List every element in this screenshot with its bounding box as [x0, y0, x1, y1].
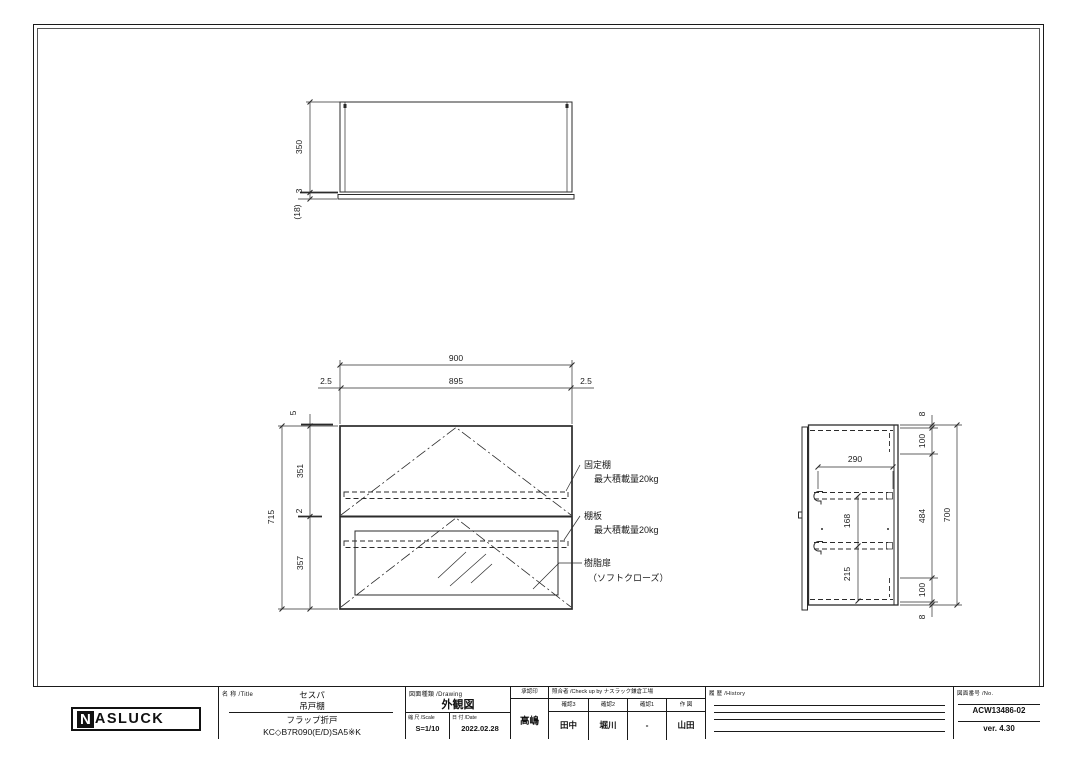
check-label: 照合者 /Check up by ナスラック鎌倉工場	[549, 687, 705, 699]
drafter: 山田	[666, 712, 705, 740]
date-value: 2022.02.28	[450, 724, 510, 733]
history-row-line	[714, 719, 945, 720]
glass-hatch	[438, 552, 492, 586]
side-fixed-shelf	[814, 492, 893, 505]
logo-n-mark: N	[77, 711, 94, 728]
check-column-headers: 確認3 確認2 確認1 作 図	[549, 699, 705, 712]
history-row-line	[714, 705, 945, 706]
history-cell: 履 歴 /History	[705, 687, 953, 739]
callout-fixed-shelf: 固定棚	[584, 459, 611, 470]
check-col-1: 確認1	[627, 699, 666, 712]
dim-side-shelf-gap: 168	[842, 514, 852, 528]
history-row-line	[714, 731, 945, 732]
check-values: 田中 堀川 - 山田	[549, 712, 705, 740]
drawing-canvas: 350 3 (18) 900 2.5 895 2.5	[0, 0, 1080, 764]
pin-hole-right	[887, 528, 889, 530]
check-col-3: 確認3	[549, 699, 588, 712]
drawing-number: ACW13486-02	[954, 706, 1044, 715]
date-label: 日 付 /Date	[452, 714, 477, 721]
pin-hole-left	[821, 528, 823, 530]
title-cell: 名 称 /Title セスパ 吊戸棚 フラップ折戸 KC◇B7R090(E/D)…	[218, 687, 405, 739]
fixed-shelf-hidden-line	[344, 492, 568, 499]
dim-top-door-thickness: (18)	[292, 204, 302, 219]
check-cell: 照合者 /Check up by ナスラック鎌倉工場 確認3 確認2 確認1 作…	[548, 687, 705, 739]
hinge-mark-right	[566, 104, 569, 108]
drawing-type: 外観図	[406, 696, 510, 712]
dim-front-inner-width: 895	[449, 376, 463, 386]
dim-side-bottom-space: 100	[917, 583, 927, 597]
dim-top-depth: 350	[294, 140, 304, 154]
title-divider	[229, 712, 393, 713]
dim-side-top-panel: 8	[917, 411, 927, 416]
check-col-draw: 作 図	[666, 699, 705, 712]
flap-open-direction-upper	[341, 428, 571, 516]
drawing-type-cell: 図面種類 /Drawing 外観図 縮 尺 /Scale S=1/10 日 付 …	[405, 687, 510, 739]
side-shelf	[814, 542, 893, 555]
dim-top-gap: 3	[294, 188, 304, 193]
dim-side-bottom-panel: 8	[917, 614, 927, 619]
checker-1: -	[627, 712, 666, 740]
product-subtype: フラップ折戸	[219, 714, 405, 726]
drawing-no-label: 図面番号 /No.	[957, 689, 993, 697]
side-door-handle	[799, 512, 803, 518]
drawing-version: ver. 4.30	[954, 724, 1044, 733]
side-door-panel	[802, 427, 808, 610]
callout-fixed-shelf-load: 最大積載量20kg	[594, 473, 659, 484]
history-row-line	[714, 712, 945, 713]
scale-label: 縮 尺 /Scale	[408, 714, 435, 721]
checker-2: 堀川	[588, 712, 627, 740]
dim-front-width: 900	[449, 353, 463, 363]
dim-front-lower: 357	[295, 556, 305, 570]
callout-shelf-load: 最大積載量20kg	[594, 524, 659, 535]
dim-side-bottom-gap: 215	[842, 567, 852, 581]
history-label: 履 歴 /History	[709, 689, 745, 697]
approval-cell: 承認印 高嶋	[510, 687, 548, 739]
number-divider	[958, 704, 1040, 705]
shelf-hidden-line	[344, 541, 568, 548]
drawing-number-cell: 図面番号 /No. ACW13486-02 ver. 4.30	[953, 687, 1044, 739]
dim-front-gap-left: 2.5	[320, 376, 332, 386]
approval-label: 承認印	[511, 687, 548, 699]
callout-door: 樹脂扉	[584, 557, 611, 568]
product-series: セスパ	[219, 690, 405, 701]
side-view: 290 168 215 8 100 484 100 8 700	[799, 411, 963, 619]
dim-side-top-space: 100	[917, 434, 927, 448]
title-block: N ASLUCK 名 称 /Title セスパ 吊戸棚 フラップ折戸 KC◇B7…	[33, 686, 1044, 738]
top-view: 350 3 (18)	[292, 100, 574, 220]
dim-side-height: 700	[942, 508, 952, 522]
callouts: 固定棚 最大積載量20kg 棚板 最大積載量20kg 樹脂扉 （ソフトクローズ）	[533, 459, 669, 589]
product-type: 吊戸棚	[219, 701, 405, 712]
nasluck-logo: N ASLUCK	[71, 707, 201, 731]
scale-value: S=1/10	[406, 724, 449, 733]
hinge-mark-left	[344, 104, 347, 108]
dim-front-gap-right: 2.5	[580, 376, 592, 386]
dim-front-top-panel: 5	[288, 410, 298, 415]
dim-front-height: 715	[266, 510, 276, 524]
logo-wordmark: ASLUCK	[95, 711, 164, 727]
dim-side-middle: 484	[917, 509, 927, 523]
logo-cell: N ASLUCK	[33, 687, 218, 739]
callout-door-note: （ソフトクローズ）	[588, 572, 669, 583]
date-cell: 日 付 /Date 2022.02.28	[449, 713, 510, 739]
scale-cell: 縮 尺 /Scale S=1/10	[406, 713, 449, 739]
dim-front-upper: 351	[295, 464, 305, 478]
checker-3: 田中	[549, 712, 588, 740]
check-col-2: 確認2	[588, 699, 627, 712]
dim-side-depth: 290	[848, 454, 862, 464]
number-divider	[958, 721, 1040, 722]
callout-shelf: 棚板	[584, 510, 602, 521]
dim-front-mid-gap: 2	[294, 508, 304, 513]
model-number: KC◇B7R090(E/D)SA5※K	[219, 726, 405, 738]
front-view: 900 2.5 895 2.5 715 5 351 2 357 固定棚 最大積載…	[266, 353, 669, 612]
door-edge-strip	[338, 195, 574, 200]
approval-name: 高嶋	[511, 699, 548, 740]
